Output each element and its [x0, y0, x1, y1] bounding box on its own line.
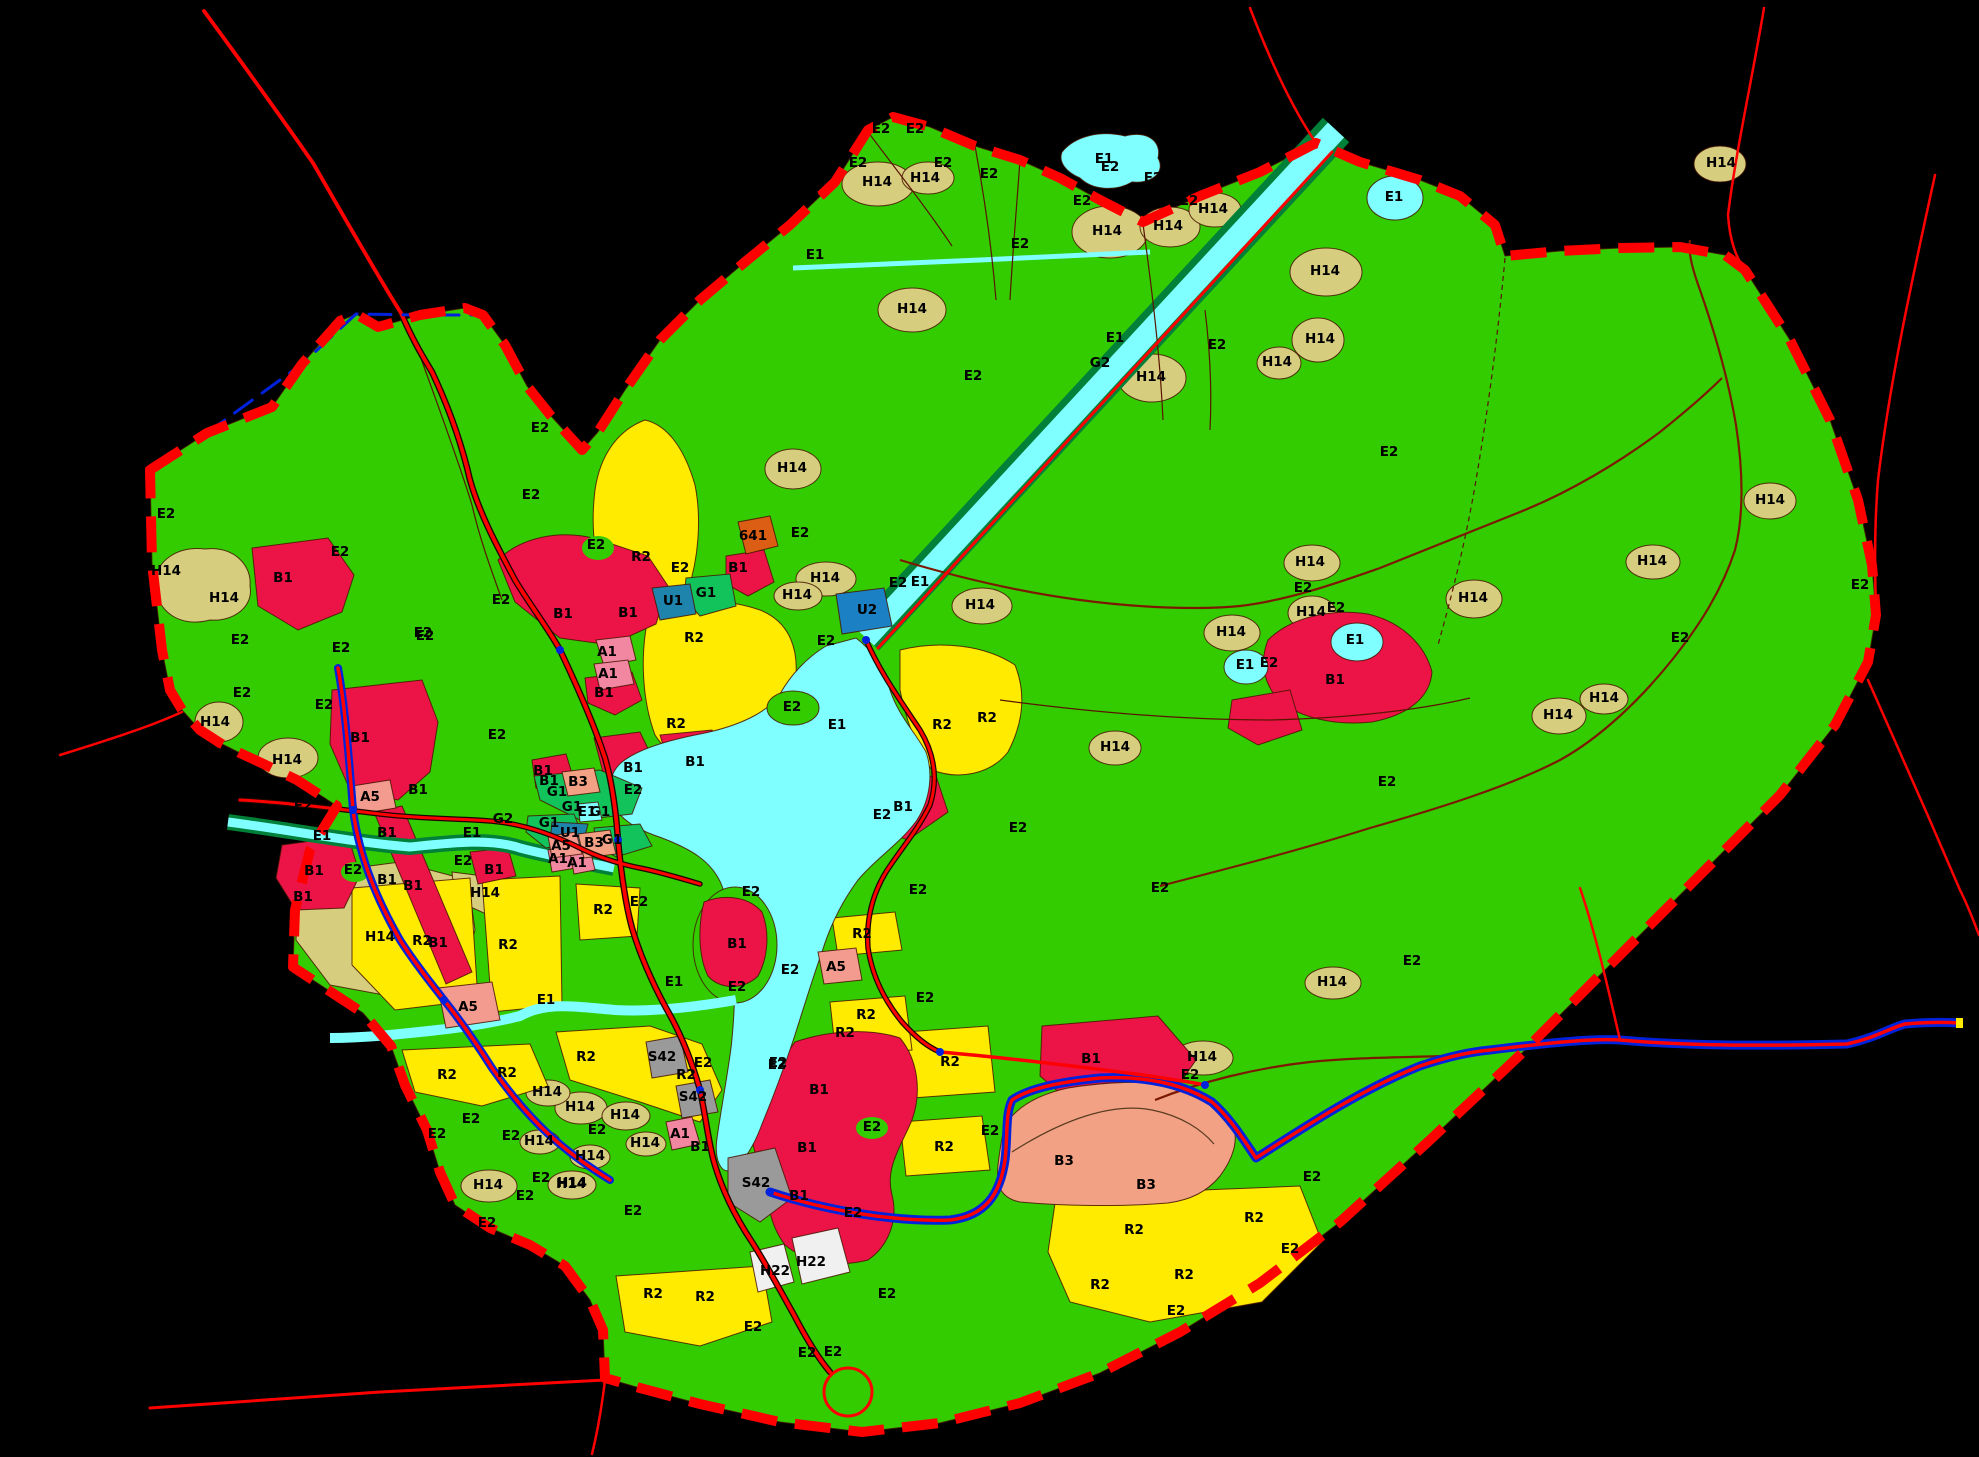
zone-label-e2: E2 [1303, 1169, 1322, 1185]
zone-label-e2: E2 [488, 727, 507, 743]
zone-label-e1: E1 [1236, 657, 1255, 673]
road-ne-outside-2[interactable] [1728, 8, 1764, 270]
zone-label-e2: E2 [1380, 444, 1399, 460]
zone-label-e2: E2 [516, 1188, 535, 1204]
zone-label-e2: E2 [1011, 236, 1030, 252]
zone-label-e2: E2 [1378, 774, 1397, 790]
zone-label-h14: H14 [1216, 624, 1246, 640]
zone-label-h14: H14 [473, 1177, 503, 1193]
zone-label-e2: E2 [906, 121, 925, 137]
zone-label-e2: E2 [849, 155, 868, 171]
zone-label-b1: B1 [484, 862, 504, 878]
zone-label-b1: B1 [685, 754, 705, 770]
road-bottom-outside[interactable] [150, 1380, 605, 1408]
zone-label-e1: E1 [1106, 330, 1125, 346]
zone-label-s42: S42 [679, 1089, 708, 1105]
zone-label-e1: E1 [828, 717, 847, 733]
zone-label-e1: E1 [911, 574, 930, 590]
zone-label-e1: E1 [463, 825, 482, 841]
zone-label-r2: R2 [1124, 1222, 1144, 1238]
zone-label-e2: E2 [294, 798, 313, 814]
zone-label-e1: E1 [665, 974, 684, 990]
zone-label-e1: E1 [537, 992, 556, 1008]
zone-label-e2: E2 [587, 537, 606, 553]
road-s-stub[interactable] [592, 1380, 605, 1454]
zone-label-h14: H14 [1755, 492, 1785, 508]
road-ne-outside-1[interactable] [1250, 8, 1316, 143]
zone-label-r2: R2 [932, 717, 952, 733]
zone-label-h14: H14 [1153, 218, 1183, 234]
zone-label-a1: A1 [567, 855, 587, 871]
zone-label-a5: A5 [360, 789, 380, 805]
zone-label-r2: R2 [643, 1286, 663, 1302]
zone-label-h14: H14 [1706, 155, 1736, 171]
zone-label-e1: E1 [313, 828, 332, 844]
zone-label-b1: B1 [623, 760, 643, 776]
zone-label-e2: E2 [344, 862, 363, 878]
zone-label-h14: H14 [630, 1135, 660, 1151]
zone-label-b1: B1 [293, 889, 313, 905]
zone-label-h22: H22 [796, 1254, 826, 1270]
zone-label-g2: G2 [1090, 355, 1110, 371]
zone-label-e1: E1 [1346, 632, 1365, 648]
zone-label-g1: G1 [539, 815, 559, 831]
zone-label-e2: E2 [824, 1344, 843, 1360]
zone-label-b1: B1 [594, 685, 614, 701]
zoning-map: E2E2E2E2E2E2E2E2E2E2E2E2E2E2E2E2E2E2E2E2… [0, 0, 1979, 1457]
zone-label-e2: E2 [1073, 193, 1092, 209]
zone-label-h14: H14 [1458, 590, 1488, 606]
zone-label-e2: E2 [1851, 577, 1870, 593]
zone-label-h14: H14 [1637, 553, 1667, 569]
zone-label-h14: H14 [897, 301, 927, 317]
zone-label-e2: E2 [315, 697, 334, 713]
zone-label-g1: G1 [602, 832, 622, 848]
zone-label-e2: E2 [873, 807, 892, 823]
zone-b3-large [998, 1082, 1236, 1205]
zone-label-e2: E2 [863, 1119, 882, 1135]
zone-label-r2: R2 [631, 549, 651, 565]
zone-label-h14: H14 [1589, 690, 1619, 706]
zone-label-r2: R2 [684, 630, 704, 646]
zone-label-h14: H14 [470, 885, 500, 901]
zone-label-e2: E2 [728, 979, 747, 995]
zone-label-e2: E2 [1403, 953, 1422, 969]
zone-h14 [155, 549, 251, 622]
zone-label-b1: B1 [553, 606, 573, 622]
zone-label-h14: H14 [1305, 331, 1335, 347]
zone-label-e2: E2 [231, 632, 250, 648]
zone-label-e2: E2 [768, 1057, 787, 1073]
zone-label-b3: B3 [1136, 1177, 1156, 1193]
zone-label-e2: E2 [817, 633, 836, 649]
zone-label-h14: H14 [365, 929, 395, 945]
zone-label-h14: H14 [272, 752, 302, 768]
zone-label-e2: E2 [502, 1128, 521, 1144]
zone-label-b1: B1 [618, 605, 638, 621]
zone-label-b1: B1 [273, 570, 293, 586]
zone-label-b3: B3 [568, 774, 588, 790]
zone-label-h14: H14 [200, 714, 230, 730]
highway-end-marker [1956, 1018, 1963, 1028]
zone-label-r2: R2 [497, 1065, 517, 1081]
zone-label-g1: G1 [696, 585, 716, 601]
zone-label-e2: E2 [744, 1319, 763, 1335]
zone-label-e2: E2 [588, 1122, 607, 1138]
zone-label-h14: H14 [965, 597, 995, 613]
zone-label-e2: E2 [522, 487, 541, 503]
zone-label-h14: H14 [565, 1099, 595, 1115]
zone-label-h14: H14 [910, 170, 940, 186]
zone-label-e2: E2 [1294, 580, 1313, 596]
zone-label-h14: H14 [610, 1107, 640, 1123]
zone-label-r2: R2 [576, 1049, 596, 1065]
zone-label-b1: B1 [1325, 672, 1345, 688]
zone-label-b1: B1 [377, 872, 397, 888]
zone-label-e1: E1 [806, 247, 825, 263]
zone-label-e2: E2 [414, 625, 433, 641]
zone-label-e2: E2 [233, 685, 252, 701]
zone-label-b1: B1 [728, 560, 748, 576]
zone-label-a5: A5 [458, 999, 478, 1015]
zone-label-e2: E2 [1009, 820, 1028, 836]
zone-label-r2: R2 [676, 1067, 696, 1083]
zone-label-r2: R2 [412, 933, 432, 949]
zone-label-r2: R2 [934, 1139, 954, 1155]
zone-label-h14: H14 [524, 1133, 554, 1149]
zone-label-r2: R2 [498, 937, 518, 953]
zone-label-b1: B1 [350, 730, 370, 746]
zone-label-b1: B1 [789, 1188, 809, 1204]
zone-label-e2: E2 [964, 368, 983, 384]
zone-label-e2: E2 [531, 420, 550, 436]
zone-label-b1: B1 [377, 825, 397, 841]
zone-label-e2: E2 [532, 1170, 551, 1186]
zone-label-e2: E2 [872, 121, 891, 137]
zone-label-b1: B1 [809, 1082, 829, 1098]
zone-label-e2: E2 [1180, 193, 1199, 209]
road-se-outside[interactable] [1868, 680, 1979, 935]
zone-label-e2: E2 [332, 640, 351, 656]
zone-label-r2: R2 [1244, 1210, 1264, 1226]
zone-label-g2: G2 [493, 811, 513, 827]
zone-label-r2: R2 [940, 1054, 960, 1070]
zone-label-e1: E1 [1095, 151, 1114, 167]
zone-label-r2: R2 [1090, 1277, 1110, 1293]
zone-label-e2: E2 [1181, 1067, 1200, 1083]
zone-label-r2: R2 [695, 1289, 715, 1305]
zone-label-e2: E2 [492, 592, 511, 608]
zone-label-r2: R2 [593, 902, 613, 918]
zone-label-e2: E2 [428, 1126, 447, 1142]
zone-label-e2: E2 [462, 1111, 481, 1127]
zone-label-e2: E2 [1281, 1241, 1300, 1257]
zone-label-e2: E2 [878, 1286, 897, 1302]
zone-label-g1: G1 [547, 784, 567, 800]
zone-label-h14: H14 [1310, 263, 1340, 279]
zone-label-e2: E2 [671, 560, 690, 576]
zone-label-e2: E2 [624, 1203, 643, 1219]
zone-label-r2: R2 [852, 926, 872, 942]
zone-label-h14: H14 [209, 590, 239, 606]
zone-label-e2: E2 [981, 1123, 1000, 1139]
zone-label-b1: B1 [893, 799, 913, 815]
zone-label-e2: E2 [694, 1055, 713, 1071]
zone-label-e2: E2 [934, 155, 953, 171]
zone-label-b1: B1 [1081, 1051, 1101, 1067]
zone-label-s42: S42 [648, 1049, 677, 1065]
zone-label-e2: E2 [1208, 337, 1227, 353]
zone-label-e2: E2 [331, 544, 350, 560]
zone-label-a5: A5 [551, 838, 571, 854]
zone-label-h14: H14 [151, 563, 181, 579]
zone-label-r2: R2 [977, 710, 997, 726]
zone-label-h14: H14 [1543, 707, 1573, 723]
zone-label-r2: R2 [856, 1007, 876, 1023]
zone-label-u2: U2 [857, 602, 877, 618]
zone-label-h14: H14 [1100, 739, 1130, 755]
zone-label-e2: E2 [798, 1345, 817, 1361]
zone-label-e2: E2 [454, 853, 473, 869]
zone-label-e2: E2 [909, 882, 928, 898]
zone-label-h14: H14 [1198, 201, 1228, 217]
zone-label-e2: E2 [624, 782, 643, 798]
zone-label-e2: E2 [478, 1215, 497, 1231]
zone-label-e2: E2 [980, 166, 999, 182]
zone-label-a5: A5 [826, 959, 846, 975]
zone-label-b1: B1 [408, 782, 428, 798]
zone-label-e2: E2 [1151, 880, 1170, 896]
zone-label-g1: G1 [590, 804, 610, 820]
zone-label-e2: E2 [1671, 630, 1690, 646]
zone-label-h14: H14 [1317, 974, 1347, 990]
zone-label-h14: H14 [575, 1148, 605, 1164]
zone-label-r2: R2 [835, 1025, 855, 1041]
zone-label-a1: A1 [598, 666, 618, 682]
zone-label-h14: H14 [1295, 554, 1325, 570]
road-sw-stub[interactable] [60, 712, 182, 755]
zone-label-a1: A1 [597, 644, 617, 660]
zone-label-b1: B1 [304, 863, 324, 879]
zone-label-e2: E2 [742, 884, 761, 900]
zone-label-e2: E2 [889, 575, 908, 591]
zone-label-e2: E2 [630, 894, 649, 910]
zone-label-h14: H14 [557, 1175, 587, 1191]
zone-label-e2: E2 [916, 990, 935, 1006]
zone-label-b3: B3 [1054, 1153, 1074, 1169]
zone-label-641: 641 [739, 528, 767, 544]
zone-label-e2: E2 [781, 962, 800, 978]
zone-label-u1: U1 [663, 593, 683, 609]
zone-label-a1: A1 [670, 1126, 690, 1142]
zone-label-e2: E2 [1327, 600, 1346, 616]
zone-label-r2: R2 [437, 1067, 457, 1083]
map-canvas[interactable]: E2E2E2E2E2E2E2E2E2E2E2E2E2E2E2E2E2E2E2E2… [0, 0, 1979, 1457]
zone-label-r2: R2 [666, 716, 686, 732]
zone-label-b1: B1 [797, 1140, 817, 1156]
zone-label-e2: E2 [1144, 170, 1163, 186]
zone-label-h14: H14 [777, 460, 807, 476]
zone-label-b1: B1 [403, 878, 423, 894]
zone-label-e1: E1 [1385, 189, 1404, 205]
zone-label-e2: E2 [783, 699, 802, 715]
zone-label-r2: R2 [1174, 1267, 1194, 1283]
zone-label-h14: H14 [532, 1084, 562, 1100]
road-e-outside[interactable] [1875, 175, 1935, 612]
zone-label-e2: E2 [157, 506, 176, 522]
zone-label-s42: S42 [742, 1175, 771, 1191]
zone-label-h14: H14 [1136, 369, 1166, 385]
zone-label-h14: H14 [782, 587, 812, 603]
zone-label-e2: E2 [1260, 655, 1279, 671]
zone-label-h14: H14 [1092, 223, 1122, 239]
zone-label-e2: E2 [801, 182, 820, 198]
zone-label-h14: H14 [1187, 1049, 1217, 1065]
zone-label-h14: H14 [1296, 604, 1326, 620]
zone-label-h14: H14 [810, 570, 840, 586]
zone-label-b3: B3 [584, 835, 604, 851]
zone-label-b1: B1 [690, 1139, 710, 1155]
zone-label-e2: E2 [1167, 1303, 1186, 1319]
zone-label-h14: H14 [1262, 354, 1292, 370]
zone-label-h22: H22 [760, 1263, 790, 1279]
zone-label-b1: B1 [727, 936, 747, 952]
zone-label-e2: E2 [791, 525, 810, 541]
zone-label-g1: G1 [562, 799, 582, 815]
zone-label-e2: E2 [844, 1205, 863, 1221]
zone-label-h14: H14 [862, 174, 892, 190]
